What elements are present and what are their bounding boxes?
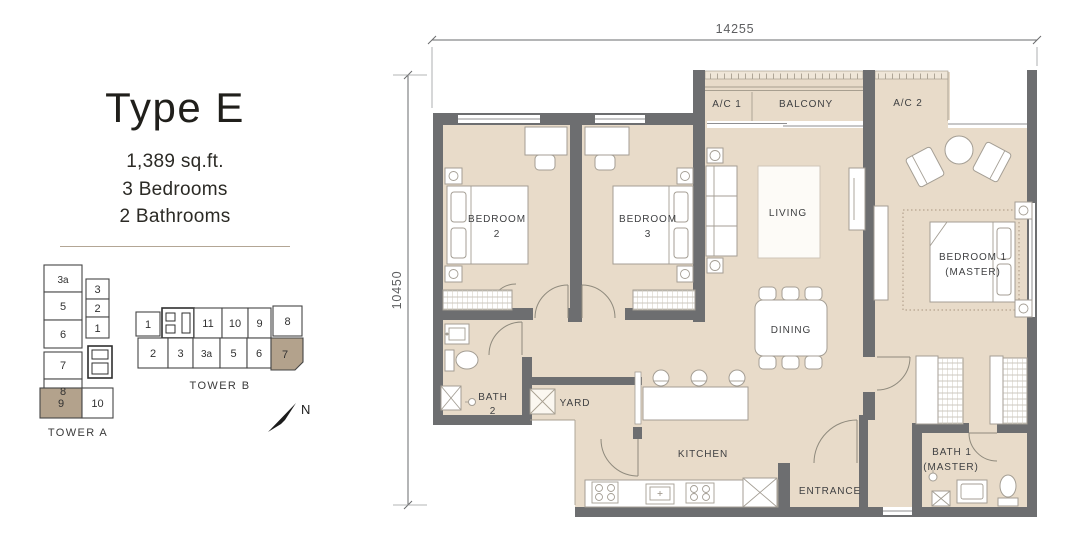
tower-b-unit: 9 [256,318,262,330]
tower-b-unit-7: 7 [282,349,288,361]
dining-label: DINING [771,325,811,336]
balcony-sliding-door [707,121,863,128]
tower-a-unit: 5 [60,301,66,313]
master-bedroom-label: BEDROOM 1 [939,252,1007,263]
entrance-label: ENTRANCE [799,486,861,497]
stool-icon [729,370,745,386]
shower-head-icon [469,399,476,406]
tower-b-diagram: 1 11 10 9 8 2 3 3a 5 6 7 TOWER B [132,300,310,396]
chair-icon [595,155,615,170]
north-label: N [301,402,310,417]
tower-a-unit: 8 [60,386,66,398]
divider-line [60,246,290,247]
bathrooms-text: 2 Bathrooms [38,203,312,231]
island-counter-icon [643,387,748,420]
bedroom2-label: BEDROOM [468,214,526,225]
tower-b-label: TOWER B [190,380,251,392]
stool-icon [653,370,669,386]
north-compass: N [263,397,315,441]
wardrobe-icon [916,356,938,424]
stool-icon [691,370,707,386]
bedroom3-label: BEDROOM [619,214,677,225]
tower-a-unit: 3 [94,284,100,296]
pillow-icon [451,228,466,258]
tower-a-unit: 1 [94,323,100,335]
tower-a-diagram: 3a 5 6 7 8 3 2 1 9 10 TOWER A [36,262,126,444]
floor-plan-page: Type E 1,389 sq.ft. 3 Bedrooms 2 Bathroo… [0,0,1080,553]
chair-icon [535,155,555,170]
bedrooms-text: 3 Bedrooms [38,176,312,204]
bath2-label: BATH [478,392,508,403]
nightstand-icon [445,168,462,184]
desk-icon [585,127,629,155]
nightstand-icon [677,266,693,282]
north-arrow-icon [268,403,296,432]
tower-a-unit: 7 [60,360,66,372]
tower-b-unit: 2 [150,348,156,360]
yard-label: YARD [560,398,591,409]
tower-a-unit: 6 [60,329,66,341]
tower-a-unit: 2 [94,303,100,315]
dimension-width-label: 14255 [716,22,755,36]
floor-plan-drawing: 14255 10450 [385,0,1080,553]
plan-type-title: Type E [38,84,312,132]
tower-a-unit: 3a [57,275,69,286]
tower-b-unit: 8 [284,316,290,328]
dining-chair-icon [759,287,776,300]
vanity-desk-icon [874,206,888,300]
dining-chair-icon [782,287,799,300]
bath2-label: 2 [490,406,496,417]
dining-chair-icon [805,287,822,300]
toilet-tank-icon [445,350,454,371]
tower-b-unit: 5 [230,348,236,360]
nightstand-icon [1015,300,1032,317]
tower-b-unit: 6 [256,348,262,360]
sofa-icon [706,166,737,256]
info-panel: Type E 1,389 sq.ft. 3 Bedrooms 2 Bathroo… [38,84,312,247]
living-label: LIVING [769,208,807,219]
tower-a-unit-10: 10 [91,398,103,410]
bath1-label: (MASTER) [923,462,979,473]
tower-a-units: 3a 5 6 7 8 3 2 1 9 10 [40,265,113,418]
tower-a-unit-9: 9 [58,398,64,410]
pillow-icon [674,228,688,258]
tower-b-unit: 1 [145,319,151,331]
tower-b-unit: 10 [229,318,241,330]
tower-a-label: TOWER A [48,427,108,439]
area-text: 1,389 sq.ft. [38,148,312,176]
dimension-left: 10450 [390,71,427,509]
sink-icon [957,480,987,503]
tower-b-units: 1 11 10 9 8 2 3 3a 5 6 7 [136,306,303,370]
desk-icon [525,127,567,155]
pillow-icon [451,192,466,222]
tower-b-unit: 11 [202,318,213,330]
kitchen-label: KITCHEN [678,449,728,460]
tv-console-icon [849,168,865,230]
yard-kitchen-door-frame [635,372,641,424]
dining-chair-icon [759,356,776,369]
round-table-icon [945,136,973,164]
balcony-label: BALCONY [779,99,833,110]
nightstand-icon [1015,202,1032,219]
shower-head-icon [929,473,937,481]
tower-b-unit: 3 [177,348,183,360]
tower-b-unit: 3a [201,349,213,360]
bedroom2-label: 2 [494,229,500,240]
toilet-tank-icon [998,498,1018,506]
bedroom3-label: 3 [645,229,651,240]
dining-chair-icon [782,356,799,369]
ac2-label: A/C 2 [893,98,923,109]
toilet-icon [1000,475,1016,497]
dimension-height-label: 10450 [390,271,404,310]
dining-chair-icon [805,356,822,369]
toilet-icon [456,351,478,369]
wardrobe-icon [990,356,1003,424]
nightstand-icon [445,266,462,282]
nightstand-icon [677,168,693,184]
master-bedroom-label: (MASTER) [945,267,1001,278]
ac1-label: A/C 1 [712,99,742,110]
bath1-label: BATH 1 [932,447,972,458]
